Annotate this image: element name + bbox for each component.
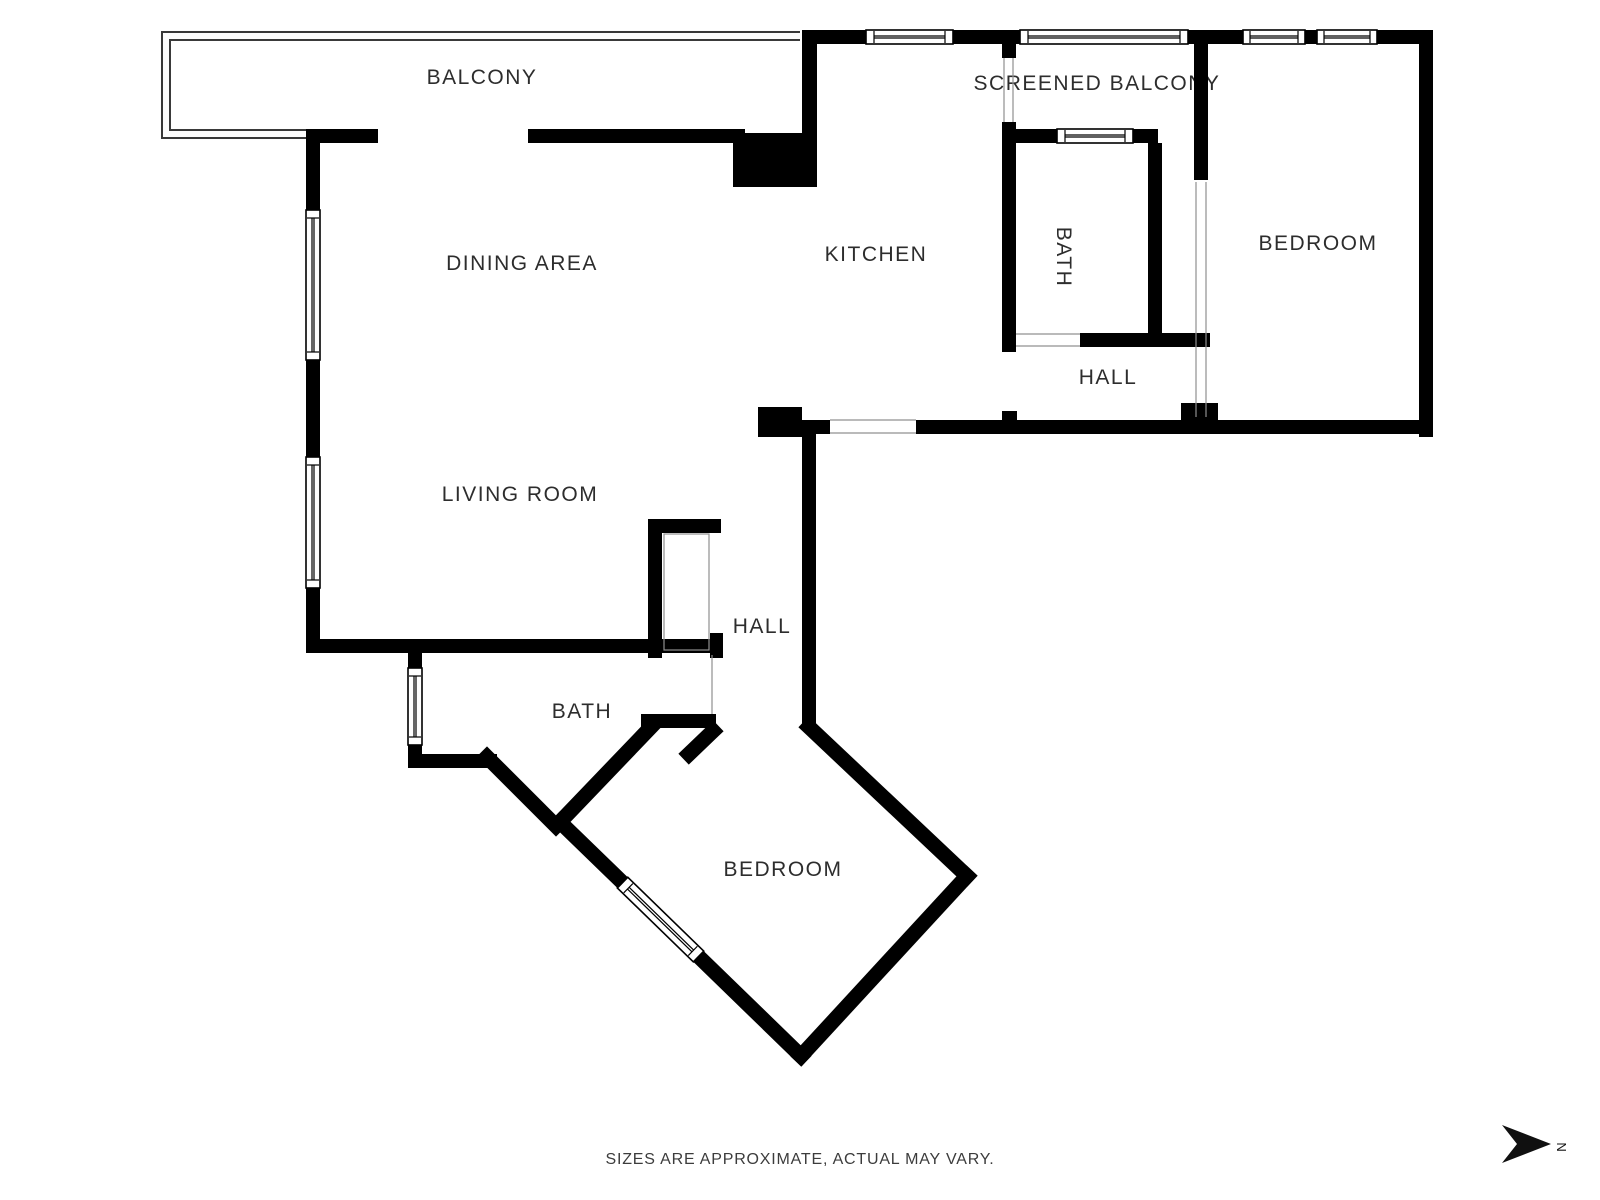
room-label-bedroom-right: BEDROOM (1258, 232, 1377, 255)
room-label-kitchen: KITCHEN (825, 243, 928, 266)
wall (408, 652, 422, 668)
wall (953, 30, 1020, 44)
wall (1194, 30, 1208, 180)
floor-plan-svg: SCREENED BALCONY (0, 0, 1600, 1200)
wall (1148, 143, 1162, 347)
wall (1305, 30, 1317, 44)
window-symbol (306, 457, 320, 588)
north-label: N (1554, 1142, 1569, 1151)
window-symbol (306, 210, 320, 360)
room-label-bath-bottom: BATH (552, 700, 612, 723)
room-label-dining-area: DINING AREA (446, 252, 598, 275)
window-symbol (1020, 30, 1188, 44)
wall (648, 519, 662, 658)
wall (1002, 411, 1017, 420)
window-symbol (866, 30, 953, 44)
room-label-bedroom-bottom: BEDROOM (723, 858, 842, 881)
floor-plan: SCREENED BALCONY (0, 0, 1600, 1200)
room-label-hall-center: HALL (733, 615, 792, 638)
wall (802, 433, 816, 724)
wall (1080, 333, 1210, 347)
wall (1419, 30, 1433, 437)
wall (1133, 129, 1158, 143)
wall (306, 360, 320, 457)
wall (1002, 129, 1057, 143)
wall (802, 30, 817, 187)
wall (758, 407, 802, 437)
window-symbol (1317, 30, 1377, 44)
room-label-living-room: LIVING ROOM (442, 483, 599, 506)
wall (802, 30, 866, 44)
wall (306, 129, 378, 143)
wall (1002, 44, 1016, 58)
wall (802, 420, 830, 434)
wall (710, 633, 723, 658)
room-label-balcony: BALCONY (427, 66, 538, 89)
wall (528, 129, 745, 143)
disclaimer-text: SIZES ARE APPROXIMATE, ACTUAL MAY VARY. (606, 1151, 995, 1168)
wall (1181, 403, 1218, 420)
wall (916, 420, 1433, 434)
window-symbol (1057, 129, 1133, 143)
room-label-bath-top: BATH (1052, 227, 1075, 287)
window-symbol (408, 668, 422, 745)
window-symbol (1243, 30, 1305, 44)
room-label-hall-top: HALL (1079, 366, 1138, 389)
room-label-screened-balcony: SCREENED BALCONY (974, 72, 1221, 95)
wall (648, 519, 721, 533)
wall (1002, 122, 1016, 352)
